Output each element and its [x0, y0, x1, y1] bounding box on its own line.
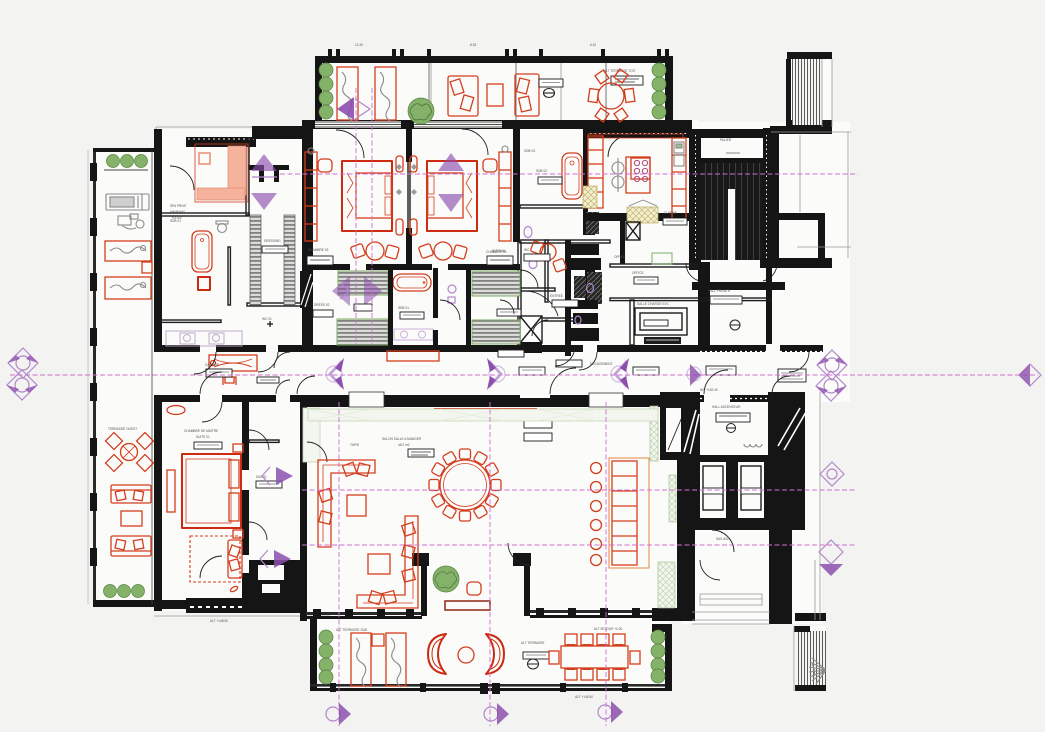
svg-text:SALON SALLE A MANGER: SALON SALLE A MANGER [382, 437, 422, 441]
svg-text:ENTREE: ENTREE [550, 294, 563, 298]
svg-text:TERRASSE OUEST: TERRASSE OUEST [108, 427, 137, 431]
svg-text:SDB 03: SDB 03 [524, 149, 535, 153]
svg-text:NIV +152.40: NIV +152.40 [700, 388, 718, 392]
svg-text:DRESS 02: DRESS 02 [314, 303, 330, 307]
svg-text:HALL ASCENSEUR: HALL ASCENSEUR [712, 405, 741, 409]
svg-text:CHAMBRE 02: CHAMBRE 02 [308, 248, 329, 252]
svg-text:BUREAU: BUREAU [492, 249, 506, 253]
svg-text:CHAMBRE DE MAITRE: CHAMBRE DE MAITRE [184, 429, 218, 433]
svg-text:12.40: 12.40 [355, 43, 363, 47]
svg-text:ALT +148.50: ALT +148.50 [210, 619, 228, 623]
svg-text:PALIER: PALIER [720, 138, 732, 142]
svg-text:SDB 01: SDB 01 [170, 219, 181, 223]
svg-text:8.25: 8.25 [470, 43, 476, 47]
svg-text:ALT +148.50: ALT +148.50 [575, 695, 593, 699]
svg-text:ALT TERRASSE SUD: ALT TERRASSE SUD [336, 628, 368, 632]
svg-text:SALLE CHARGE EVC: SALLE CHARGE EVC [637, 302, 670, 306]
svg-text:48.2 m2: 48.2 m2 [398, 443, 410, 447]
svg-text:SDB 02: SDB 02 [536, 169, 547, 173]
svg-text:HALL PRIVATIF: HALL PRIVATIF [708, 289, 731, 293]
svg-text:WC: WC [524, 248, 530, 252]
svg-text:SAS 01: SAS 01 [256, 475, 267, 479]
svg-text:SPA PRIVE: SPA PRIVE [170, 204, 186, 208]
svg-text:CUISINE: CUISINE [664, 211, 677, 215]
svg-text:TAPIS: TAPIS [350, 443, 359, 447]
svg-text:DRESSING: DRESSING [264, 239, 281, 243]
svg-text:OFFICE: OFFICE [632, 271, 644, 275]
svg-text:SDB 01: SDB 01 [398, 306, 409, 310]
svg-text:ALT TERRASSE: ALT TERRASSE [521, 641, 545, 645]
svg-text:WC 01: WC 01 [262, 317, 272, 321]
svg-text:6.10: 6.10 [590, 43, 596, 47]
svg-text:OFFICE: OFFICE [614, 255, 626, 259]
svg-text:HAMMAM: HAMMAM [170, 210, 185, 214]
svg-text:SAS ASC: SAS ASC [716, 537, 730, 541]
svg-text:ALT SEJOUR +0.00: ALT SEJOUR +0.00 [594, 627, 623, 631]
svg-text:SUITE 01: SUITE 01 [196, 435, 210, 439]
